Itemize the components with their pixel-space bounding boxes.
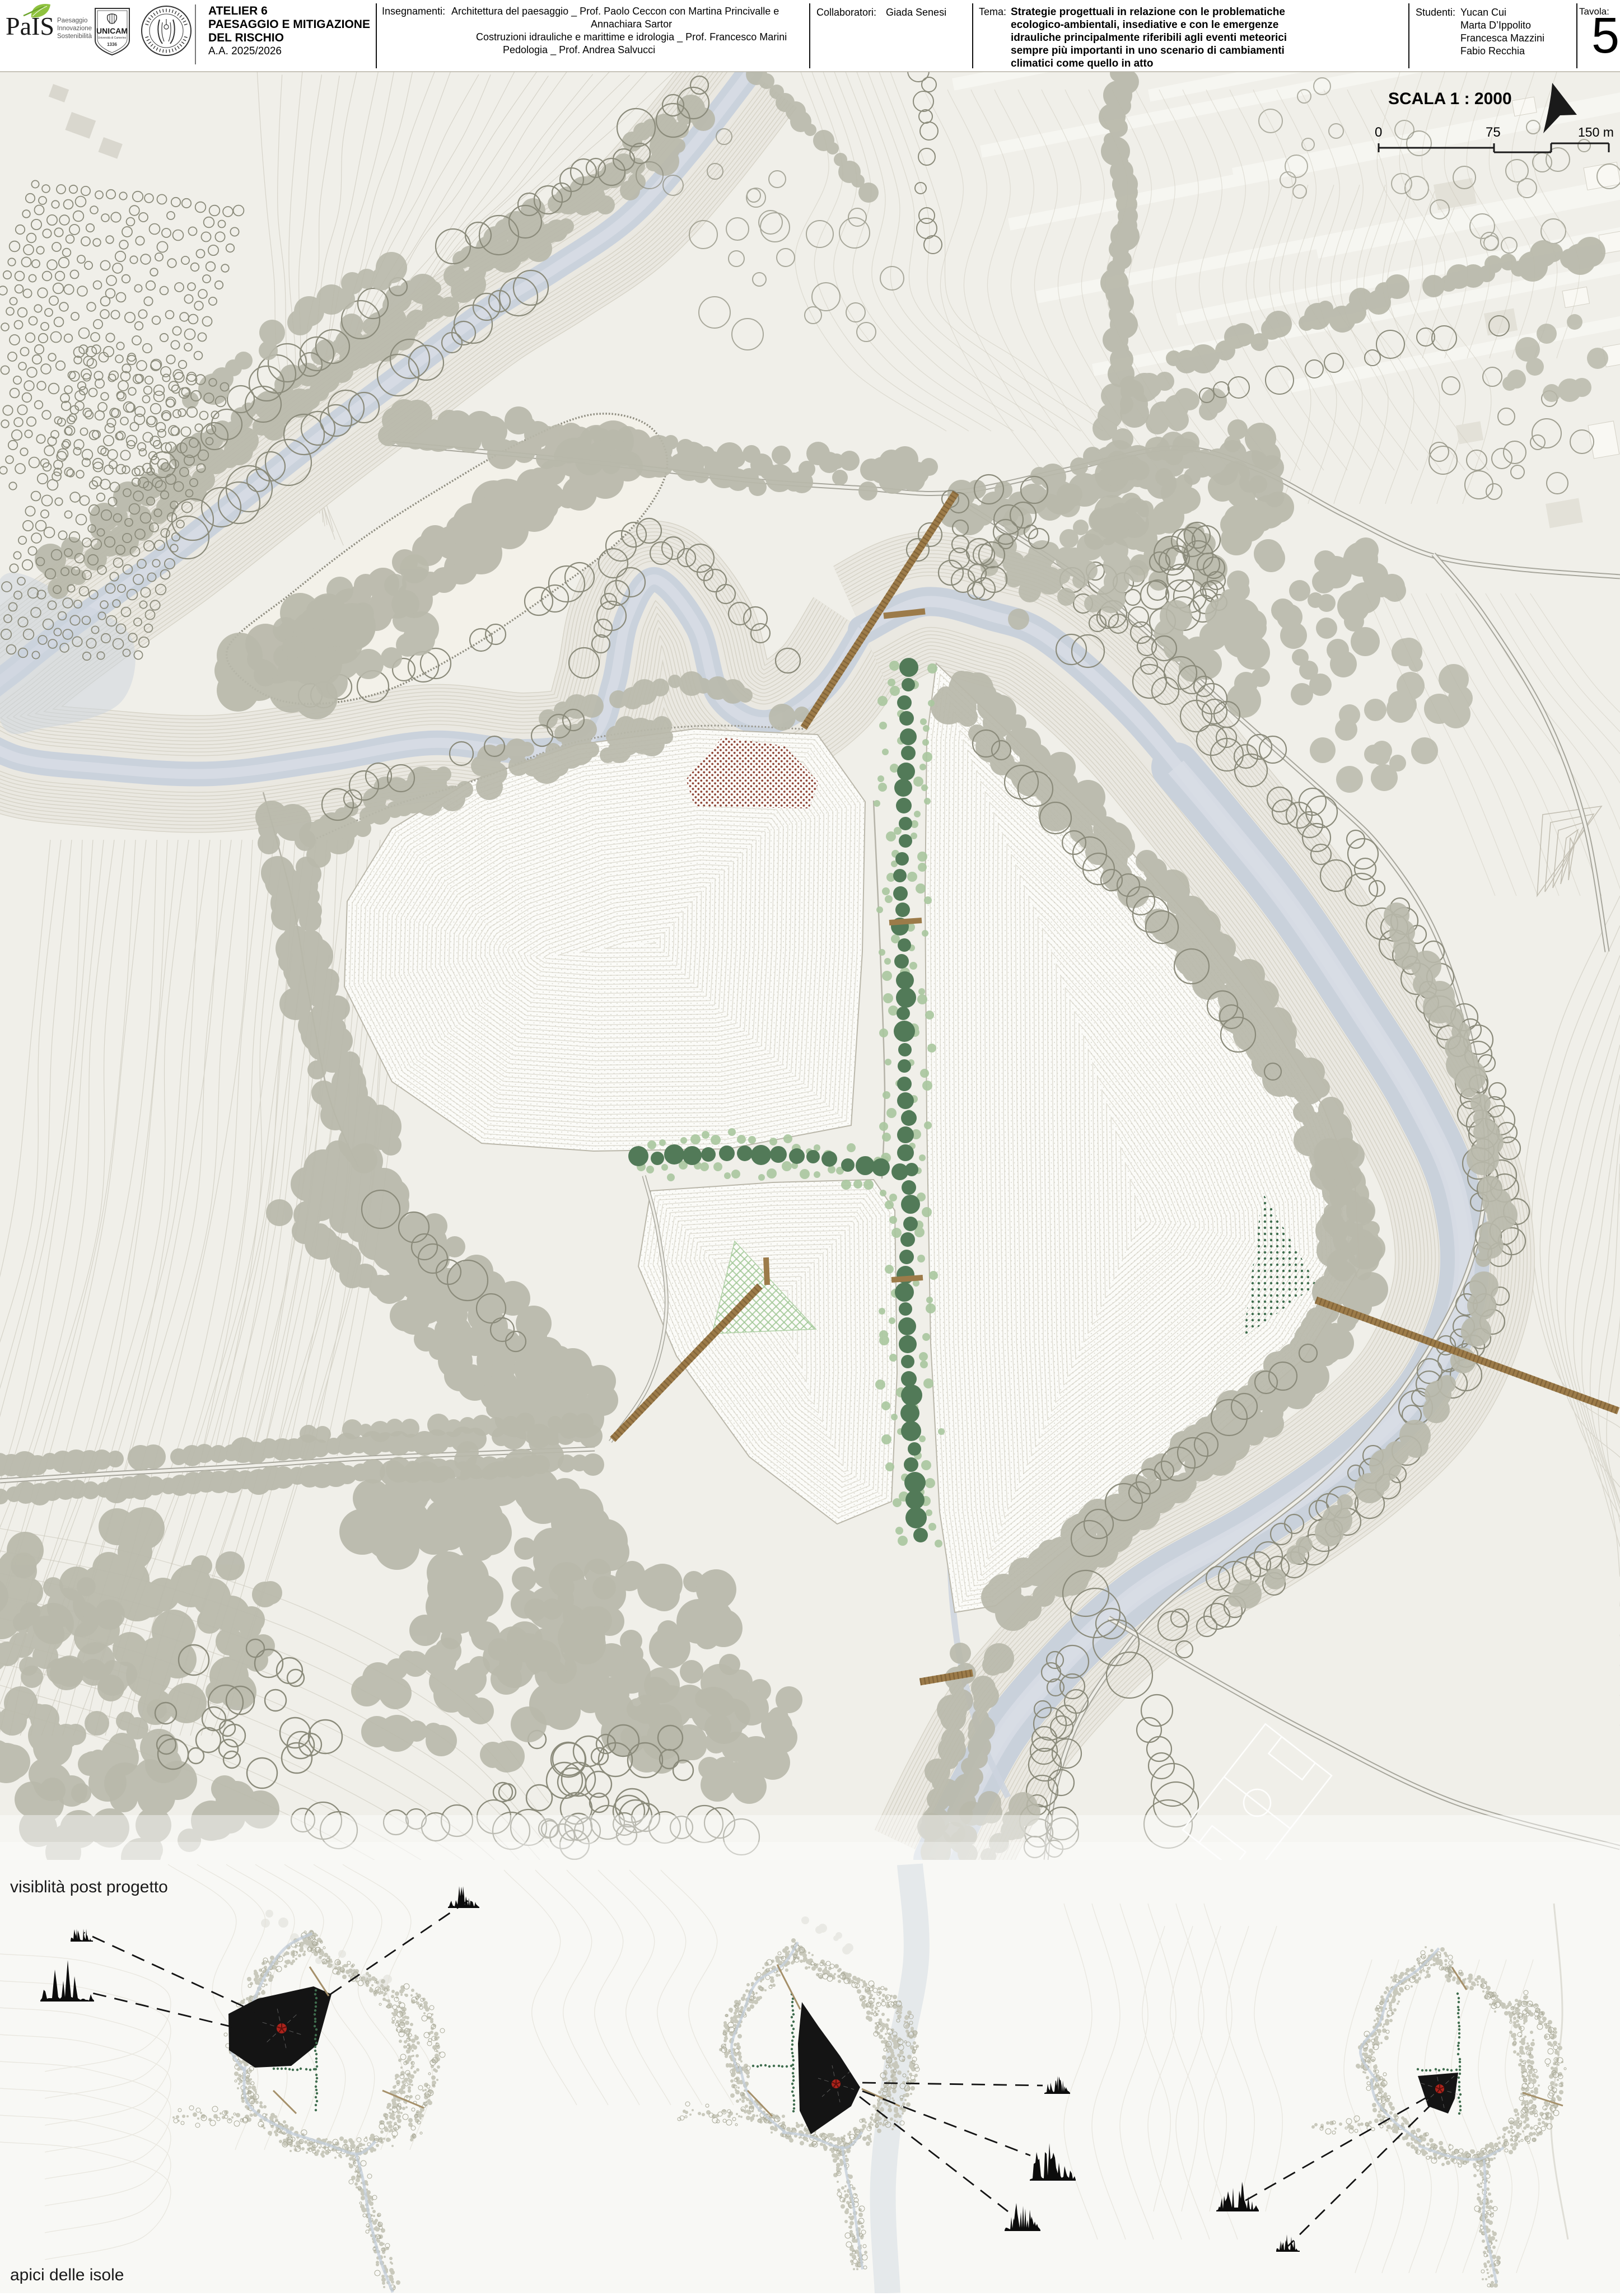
svg-text:0: 0 bbox=[1375, 125, 1382, 140]
svg-text:75: 75 bbox=[1486, 125, 1501, 140]
svg-text:apici delle isole: apici delle isole bbox=[10, 2266, 124, 2284]
svg-text:visiblità post progetto: visiblità post progetto bbox=[10, 1878, 168, 1896]
svg-text:150 m: 150 m bbox=[1578, 125, 1614, 139]
svg-text:SCALA 1 : 2000: SCALA 1 : 2000 bbox=[1388, 90, 1512, 108]
